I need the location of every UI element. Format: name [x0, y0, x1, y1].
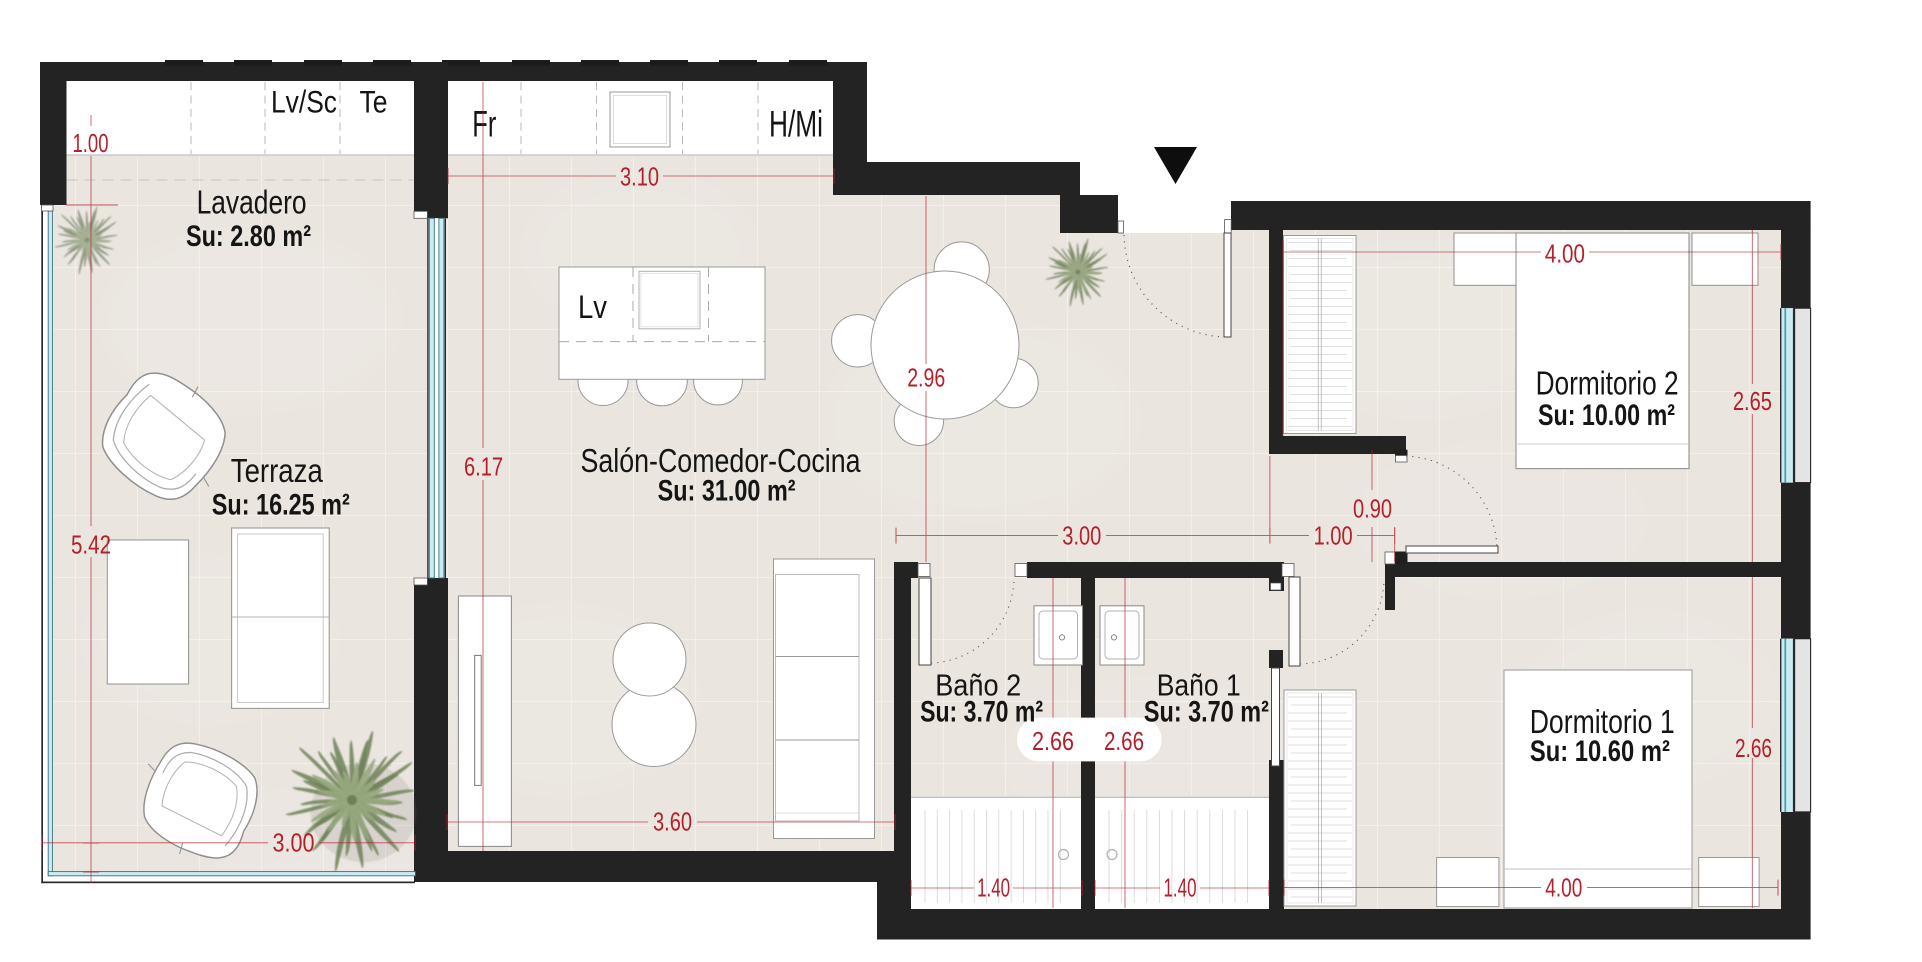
svg-text:Lavadero: Lavadero	[197, 184, 307, 221]
svg-text:Su: 10.60 m²: Su: 10.60 m²	[1530, 735, 1670, 768]
svg-text:0.90: 0.90	[1353, 494, 1392, 524]
svg-text:Su: 3.70 m²: Su: 3.70 m²	[1144, 696, 1269, 729]
svg-text:Lv: Lv	[578, 289, 608, 325]
svg-text:2.66: 2.66	[1104, 726, 1144, 756]
svg-text:Terraza: Terraza	[231, 452, 324, 489]
svg-text:Su: 10.00 m²: Su: 10.00 m²	[1538, 399, 1675, 432]
svg-text:5.42: 5.42	[71, 530, 111, 560]
svg-text:3.10: 3.10	[620, 162, 659, 192]
svg-text:Su: 2.80 m²: Su: 2.80 m²	[186, 220, 311, 253]
svg-text:2.66: 2.66	[1032, 726, 1074, 756]
svg-text:1.40: 1.40	[977, 873, 1010, 903]
svg-text:3.00: 3.00	[273, 828, 315, 858]
svg-text:2.96: 2.96	[907, 363, 945, 393]
svg-text:2.66: 2.66	[1735, 733, 1772, 763]
svg-text:1.40: 1.40	[1164, 873, 1197, 903]
svg-text:3.00: 3.00	[1062, 521, 1101, 551]
svg-text:Dormitorio 2: Dormitorio 2	[1536, 365, 1679, 402]
svg-text:1.00: 1.00	[1314, 521, 1353, 551]
svg-text:4.00: 4.00	[1545, 239, 1585, 269]
svg-text:Su: 3.70 m²: Su: 3.70 m²	[920, 696, 1043, 729]
svg-text:3.60: 3.60	[653, 807, 692, 837]
svg-text:1.00: 1.00	[73, 128, 109, 158]
svg-text:Salón-Comedor-Cocina: Salón-Comedor-Cocina	[581, 442, 862, 479]
svg-text:Lv/Sc: Lv/Sc	[271, 84, 337, 120]
svg-text:6.17: 6.17	[464, 452, 503, 482]
svg-text:Fr: Fr	[472, 104, 496, 145]
svg-text:Su: 16.25 m²: Su: 16.25 m²	[212, 489, 350, 522]
svg-text:2.65: 2.65	[1733, 386, 1772, 416]
svg-text:Te: Te	[360, 84, 388, 120]
svg-text:4.00: 4.00	[1545, 873, 1582, 903]
svg-text:H/Mi: H/Mi	[769, 103, 823, 144]
svg-text:Su: 31.00 m²: Su: 31.00 m²	[658, 475, 796, 508]
